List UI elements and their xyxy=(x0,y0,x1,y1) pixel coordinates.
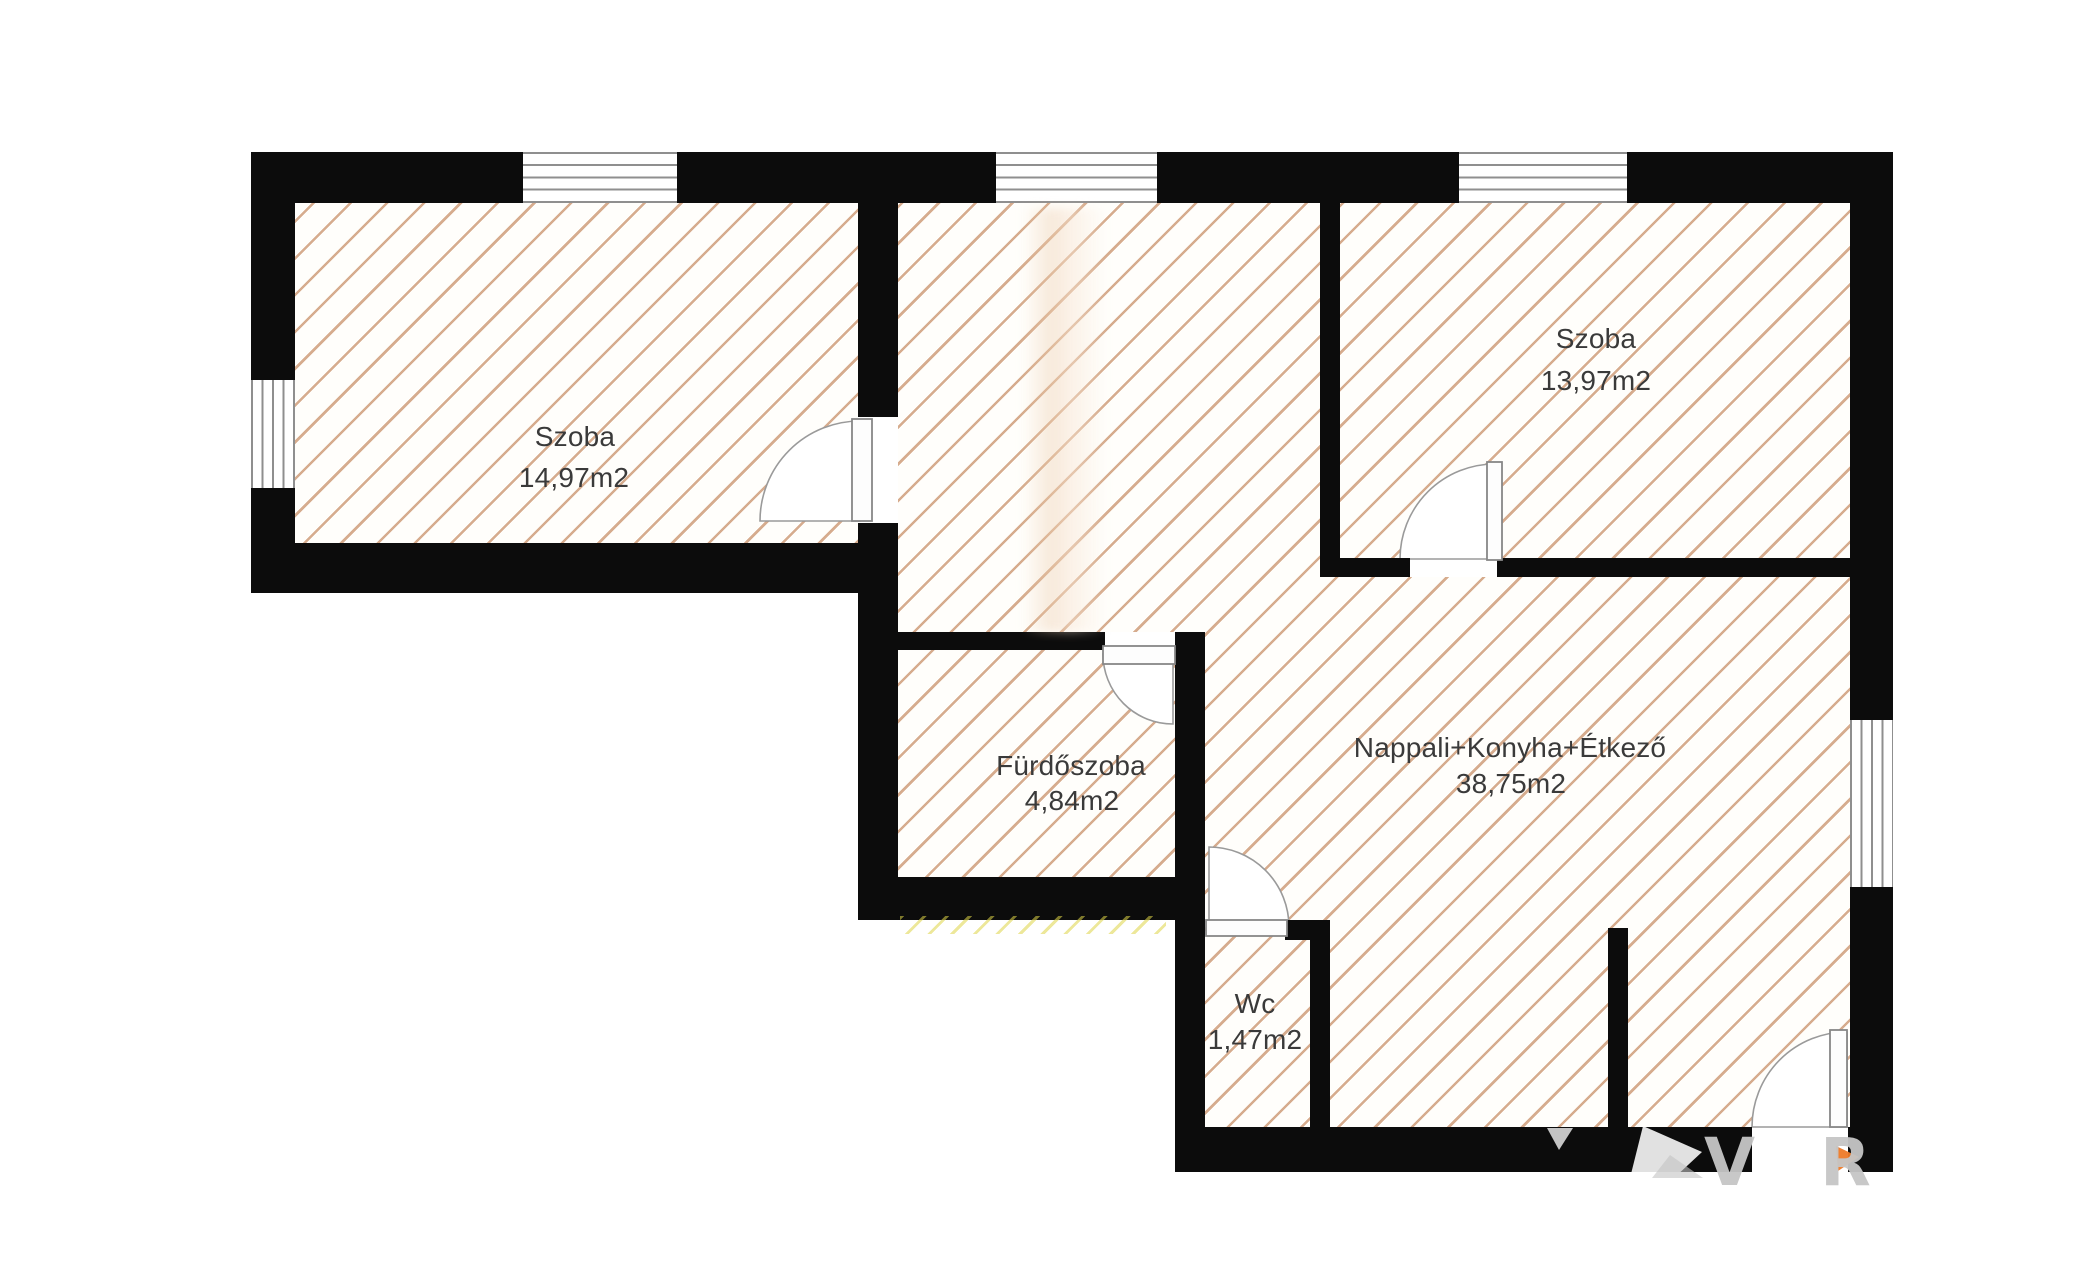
watermark-letter-v: V xyxy=(1704,1130,1755,1196)
watermark-letter-r: R xyxy=(1820,1130,1871,1196)
floor-plan-image: Szoba 14,97m2 Szoba 13,97m2 Fürdőszoba 4… xyxy=(0,0,2073,1280)
watermark-shapes xyxy=(0,0,2073,1280)
watermark-small-mark xyxy=(1547,1128,1573,1150)
